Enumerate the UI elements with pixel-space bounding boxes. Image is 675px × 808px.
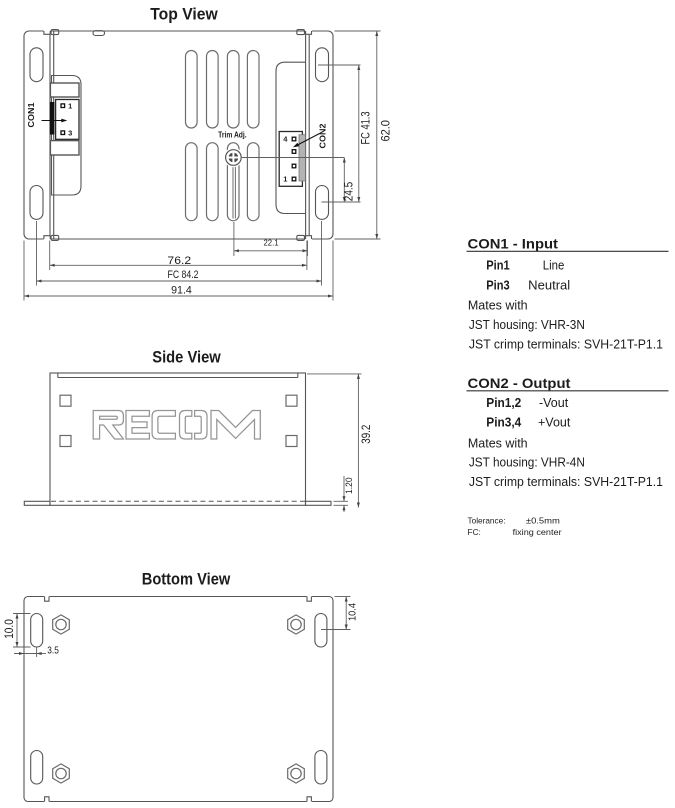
svg-text:Mates with: Mates with — [468, 437, 528, 451]
svg-text:fixing center: fixing center — [513, 527, 562, 537]
svg-text:Pin1,2: Pin1,2 — [486, 396, 521, 410]
svg-text:Pin3: Pin3 — [486, 279, 509, 293]
svg-text:CON2: CON2 — [318, 123, 328, 148]
svg-text:CON2 - Output: CON2 - Output — [468, 376, 572, 391]
svg-text:10.4: 10.4 — [346, 603, 358, 621]
svg-text:3: 3 — [68, 128, 72, 137]
svg-text:FC 84.2: FC 84.2 — [168, 269, 199, 281]
svg-text:CON1 - Input: CON1 - Input — [468, 237, 559, 252]
svg-text:76.2: 76.2 — [167, 255, 191, 267]
svg-text:Neutral: Neutral — [528, 279, 570, 293]
svg-text:Line: Line — [543, 259, 565, 273]
svg-text:Tolerance:: Tolerance: — [468, 516, 506, 526]
svg-text:FC:: FC: — [468, 527, 481, 537]
svg-text:22.1: 22.1 — [264, 237, 279, 247]
svg-text:24.5: 24.5 — [344, 182, 356, 202]
svg-text:+Vout: +Vout — [538, 416, 571, 430]
svg-text:Pin3,4: Pin3,4 — [486, 416, 521, 430]
svg-text:FC 41.3: FC 41.3 — [361, 112, 373, 145]
svg-text:Top View: Top View — [150, 5, 218, 24]
svg-text:3.5: 3.5 — [47, 645, 59, 657]
svg-text:Pin1: Pin1 — [486, 259, 509, 273]
svg-text:Side View: Side View — [152, 348, 221, 367]
svg-text:JST housing: VHR-3N: JST housing: VHR-3N — [469, 318, 585, 332]
svg-text:JST crimp terminals: SVH-21T-P: JST crimp terminals: SVH-21T-P1.1 — [469, 475, 663, 489]
svg-text:39.2: 39.2 — [361, 425, 373, 444]
svg-text:JST housing: VHR-4N: JST housing: VHR-4N — [469, 456, 585, 470]
svg-text:Bottom View: Bottom View — [142, 570, 231, 589]
svg-text:62.0: 62.0 — [380, 120, 392, 142]
svg-text:1.20: 1.20 — [344, 477, 355, 494]
svg-text:-Vout: -Vout — [539, 396, 569, 410]
svg-text:JST crimp terminals: SVH-21T-P: JST crimp terminals: SVH-21T-P1.1 — [469, 338, 663, 352]
svg-text:91.4: 91.4 — [171, 285, 192, 297]
svg-text:1: 1 — [283, 175, 287, 184]
svg-text:CON1: CON1 — [26, 102, 36, 127]
svg-text:1: 1 — [68, 101, 72, 110]
svg-text:±0.5mm: ±0.5mm — [526, 516, 560, 526]
svg-text:Trim Adj.: Trim Adj. — [218, 131, 247, 140]
svg-text:10.0: 10.0 — [4, 619, 16, 639]
svg-text:Mates with: Mates with — [468, 299, 528, 313]
